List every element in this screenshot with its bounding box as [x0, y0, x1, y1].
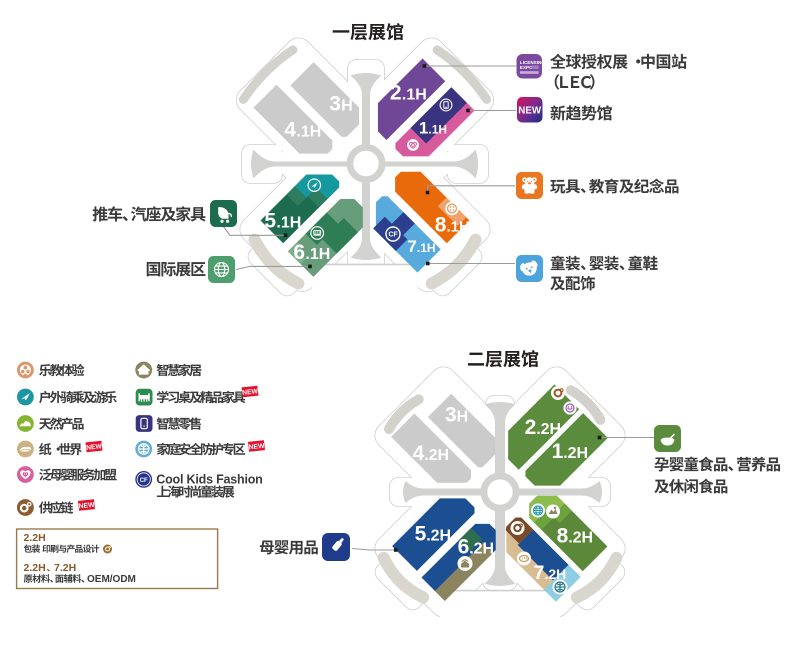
svg-text:.1H: .1H — [305, 246, 330, 263]
svg-text:CF: CF — [140, 478, 148, 484]
svg-text:7: 7 — [407, 237, 416, 256]
svg-text:H: H — [341, 98, 353, 115]
svg-text:2: 2 — [525, 416, 537, 439]
svg-text:.2H: .2H — [426, 528, 451, 545]
svg-text:EXPO: EXPO — [520, 65, 533, 70]
svg-text:1: 1 — [552, 440, 564, 463]
svg-text:.1H: .1H — [428, 122, 447, 136]
svg-text:H: H — [457, 409, 469, 426]
svg-text:.1H: .1H — [402, 87, 427, 104]
svg-text:.2H: .2H — [545, 566, 567, 582]
svg-text:8: 8 — [557, 525, 569, 548]
svg-text:.1H: .1H — [447, 219, 470, 236]
svg-text:1: 1 — [419, 118, 428, 137]
svg-text:3: 3 — [445, 404, 457, 427]
svg-text:4: 4 — [284, 119, 296, 142]
svg-text:OEM/ODM: OEM/ODM — [87, 574, 136, 585]
svg-text:.2H: .2H — [469, 541, 494, 558]
svg-text:NEW: NEW — [518, 105, 542, 116]
svg-text:.2H: .2H — [424, 447, 449, 464]
svg-text:8: 8 — [435, 214, 447, 237]
svg-text:7: 7 — [534, 563, 545, 584]
svg-text:4: 4 — [413, 442, 425, 465]
svg-text:6: 6 — [458, 536, 470, 559]
svg-text:2: 2 — [390, 82, 402, 105]
svg-text:6: 6 — [293, 241, 305, 264]
svg-text:5: 5 — [415, 523, 427, 546]
svg-text:.1H: .1H — [296, 124, 321, 141]
svg-text:2.2H: 2.2H — [24, 562, 46, 574]
svg-text:3: 3 — [329, 93, 341, 116]
svg-text:.1H: .1H — [276, 215, 301, 232]
svg-text:CF: CF — [388, 232, 398, 239]
svg-text:.2H: .2H — [568, 530, 593, 547]
svg-text:5: 5 — [264, 210, 276, 233]
svg-text:.1H: .1H — [417, 241, 436, 255]
svg-text:7.2H: 7.2H — [54, 562, 76, 574]
svg-text:2.2H: 2.2H — [24, 532, 46, 544]
svg-text:Cool Kids Fashion: Cool Kids Fashion — [156, 473, 262, 487]
svg-text:.2H: .2H — [563, 445, 588, 462]
svg-text:.2H: .2H — [536, 421, 561, 438]
